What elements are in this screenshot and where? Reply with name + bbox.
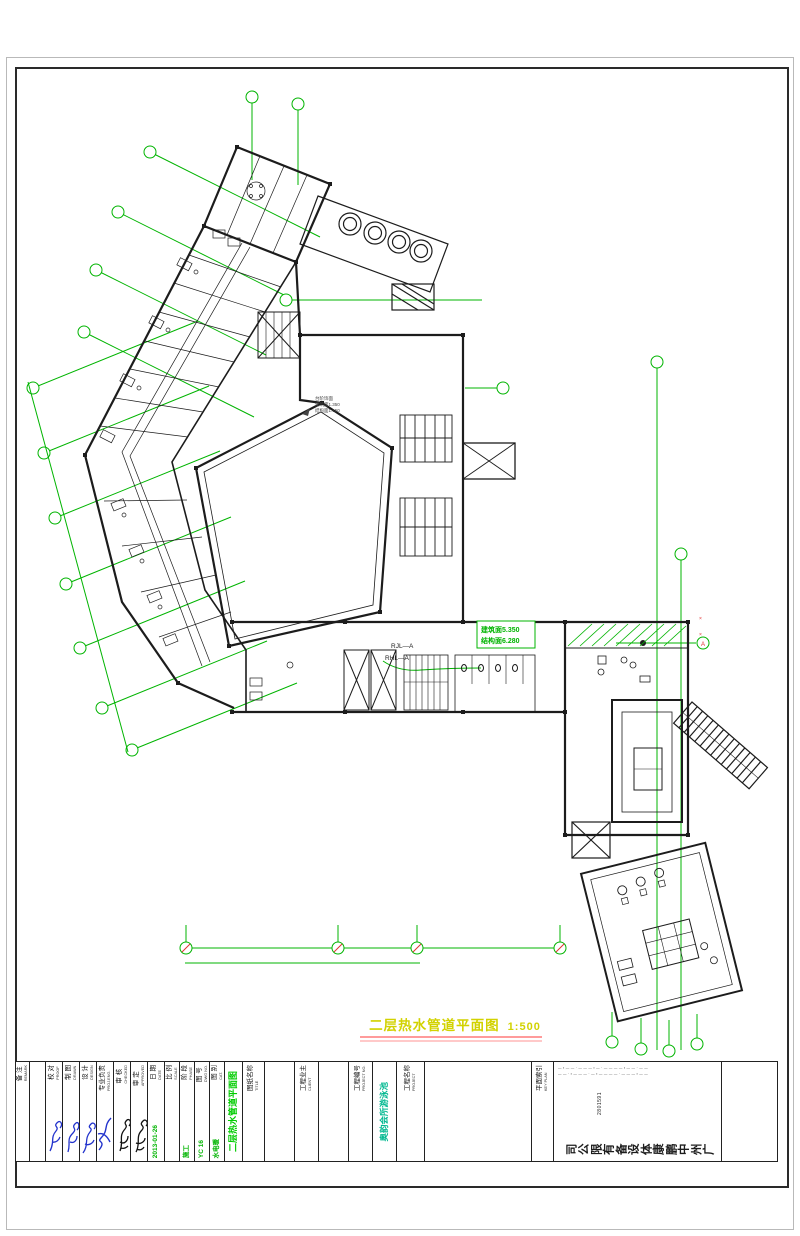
company-micro-text-1: —▪——·———▪—·————▪——·—— [558, 1066, 719, 1070]
riser-label-rhl: RHL—A [385, 655, 410, 662]
floor-plan-svg: × × A [0, 0, 800, 1236]
cell-drawn: 制 图DRAWN [63, 1062, 80, 1161]
cell-checked: 审 核CHECKED [114, 1062, 131, 1161]
cell-approved: 审 定APPROVED [131, 1062, 148, 1161]
building-walls [85, 147, 688, 835]
title-block-gap-cell [722, 1061, 778, 1162]
svg-text:×: × [699, 616, 702, 622]
signature-design [81, 1120, 95, 1154]
cell-category: 图 别CAT. 水电暖 [210, 1062, 225, 1161]
date-value: 2013-01-26 [153, 1125, 160, 1158]
riser-label-rjl: RJL—A [391, 643, 414, 650]
cell-dwg-no: 图 号DWG NO. YC 16 [195, 1062, 210, 1161]
detached-building [581, 843, 742, 1021]
cell-phase: 阶 段PHASE 施工 [180, 1062, 195, 1161]
cell-proj-eng: 专业负责PROJ.ENG. [97, 1062, 114, 1161]
project-name-green: 奥韵会所游泳池 [380, 1082, 389, 1142]
svg-text:×: × [699, 632, 702, 638]
category-value: 水电暖 [214, 1139, 221, 1159]
plan-title: 二层热水管道平面图1:500 [340, 1014, 570, 1034]
cell-remark: 备 注REMARK [16, 1062, 30, 1161]
dwg-no-value: YC 16 [199, 1140, 206, 1158]
signature-checked [115, 1116, 129, 1154]
cell-project-name-green: 奥韵会所游泳池 [373, 1062, 397, 1161]
cell-remark-value [30, 1062, 46, 1161]
cell-project-no-label: 工程编号PROJECT NO. [349, 1062, 373, 1161]
plan-title-scale: 1:500 [508, 1021, 541, 1033]
svg-text:A: A [701, 642, 705, 648]
axis-red-marks: × × A [182, 616, 705, 952]
service-stub [572, 822, 610, 858]
cell-date: 日 期DATE 2013-01-26 [148, 1062, 165, 1161]
cell-design: 设 计DESIGN [80, 1062, 97, 1161]
hall-benches [400, 415, 515, 556]
plan-title-text: 二层热水管道平面图 [369, 1018, 500, 1033]
drawing-sheet: { "sheet": { "plan_title": "二层热水管道平面图", … [0, 0, 800, 1236]
cell-title-label: 图纸名称TITLE [243, 1062, 265, 1161]
signature-drawn [64, 1120, 78, 1154]
roof-terrace-tanks [300, 196, 448, 310]
cell-company: —▪——·———▪—·————▪——·—— ——·▪———·—▪————·———… [554, 1062, 721, 1161]
cell-key-plan-label: 平面索引KEY PLAN [532, 1062, 554, 1161]
company-phone-digits: 2801591 [598, 1092, 603, 1115]
cell-project-label: 工程名称PROJECT [397, 1062, 425, 1161]
note-line-3: 结构面1.150 [315, 407, 340, 414]
note-line-1: 台阶饰面 [315, 395, 333, 402]
axis-grid [27, 91, 709, 1057]
upper-stair-core [258, 312, 300, 358]
elevation-line-1: 建筑面5.350 [481, 625, 520, 634]
phase-value: 施工 [184, 1145, 191, 1158]
note-line-2: 建筑面1.350 [315, 401, 340, 408]
bed-symbols [100, 258, 198, 646]
cell-drawing-title-green: 二层热水管道平面图 [225, 1062, 243, 1161]
cell-scale: 比 例SCALE [165, 1062, 180, 1161]
title-underline [360, 1036, 542, 1038]
cell-client-value [319, 1062, 349, 1161]
signature-proj-eng [97, 1114, 113, 1154]
title-block: 备 注REMARK 校 对PROOF 制 图DRAWN 设 计DESIGN 专业… [15, 1061, 722, 1162]
cell-title-value [265, 1062, 295, 1161]
drawing-title-green: 二层热水管道平面图 [229, 1071, 238, 1152]
company-micro-text-2: ——·▪———·—▪————·———▪—— [558, 1072, 719, 1076]
cell-proof: 校 对PROOF [46, 1062, 63, 1161]
cell-client-label: 工程业主CLIENT [295, 1062, 319, 1161]
signature-approved [132, 1116, 146, 1154]
cell-key-plan-area [425, 1062, 532, 1161]
elevation-line-2: 结构面6.280 [480, 636, 520, 645]
signature-proof [47, 1120, 61, 1154]
billiard-room [598, 656, 682, 822]
company-name: 司公限有备设体康鹏中州广 [560, 1141, 719, 1157]
title-underline-2 [360, 1040, 542, 1042]
pool-hall [196, 403, 392, 646]
